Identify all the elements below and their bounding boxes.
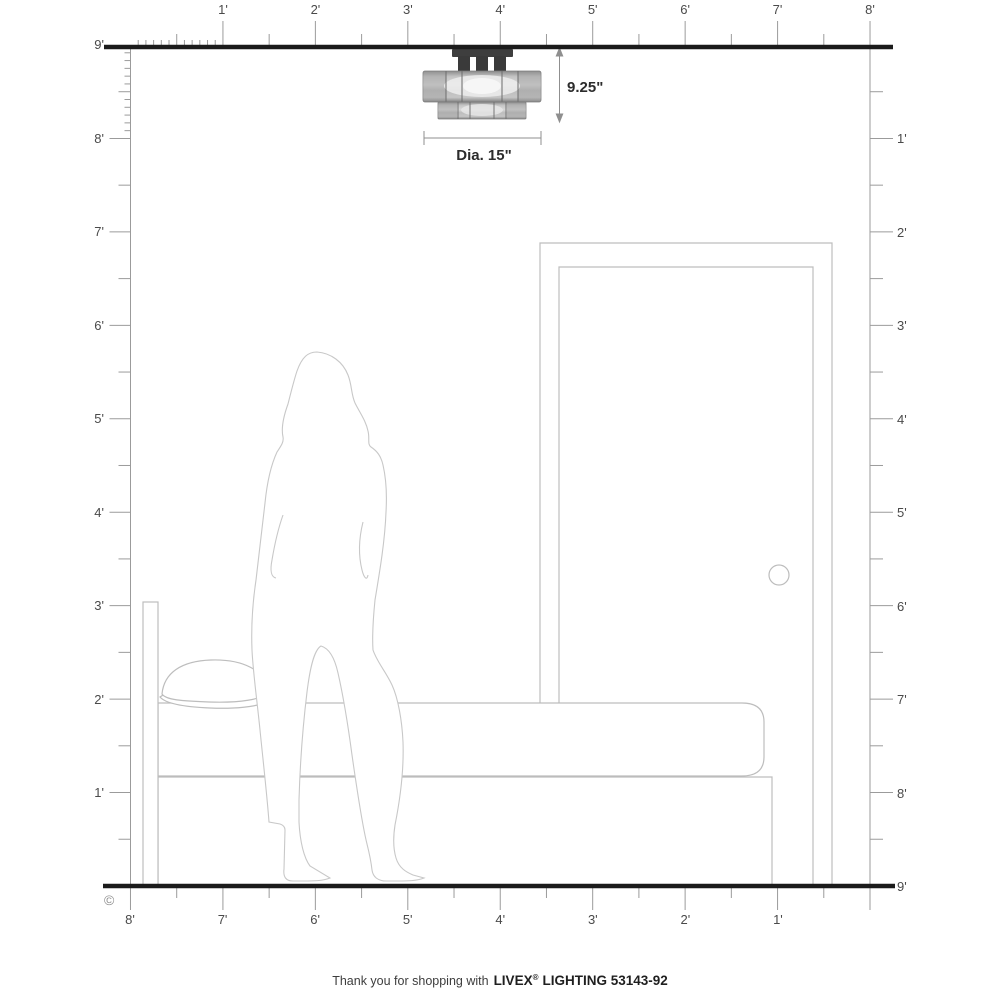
ruler-label: 3' (78, 598, 104, 613)
bed-base (158, 777, 772, 886)
registered-mark: ® (533, 973, 539, 982)
ruler-label: 8' (897, 786, 923, 801)
ruler-label: 1' (78, 785, 104, 800)
product-dimension-diagram: { "title": "Livex Lighting flush mount s… (0, 0, 1000, 1000)
light-stem (476, 56, 488, 72)
light-canopy (452, 49, 513, 57)
ruler-label: 7' (897, 692, 923, 707)
ruler-label: 6' (669, 2, 701, 17)
ruler-label: 3' (897, 318, 923, 333)
ruler-label: 6' (78, 318, 104, 333)
ruler-label: 1' (207, 2, 239, 17)
fixture-diameter-label: Dia. 15" (428, 147, 540, 164)
bed (143, 602, 772, 886)
ruler-label: 2' (669, 912, 701, 927)
flush-mount-light (423, 49, 541, 119)
ruler-label: 5' (577, 2, 609, 17)
light-shade-highlight (463, 78, 501, 94)
ruler-bottom-labels: 8' 7' 6' 5' 4' 3' 2' 1' (114, 912, 794, 927)
ruler-top-labels: 1' 2' 3' 4' 5' 6' 7' 8' (207, 2, 886, 17)
ruler-label: 1' (897, 131, 923, 146)
bed-mattress (158, 703, 764, 776)
ruler-label: 4' (484, 912, 516, 927)
product-number: LIGHTING 53143-92 (542, 973, 667, 988)
ruler-label: 6' (897, 599, 923, 614)
ruler-label: 2' (299, 2, 331, 17)
light-shade-main-shading (424, 72, 446, 101)
ruler-label: 7' (762, 2, 794, 17)
ruler-label: 4' (78, 505, 104, 520)
ruler-label: 9' (897, 879, 923, 894)
copyright-symbol: © (104, 892, 114, 908)
footer-prefix: Thank you for shopping with (332, 974, 488, 988)
ruler-label: 7' (78, 224, 104, 239)
ruler-label: 5' (392, 912, 424, 927)
ruler-label: 4' (897, 412, 923, 427)
light-shade-bottom-shading (507, 103, 525, 118)
door-knob (769, 565, 789, 585)
ruler-left-labels: 9' 8' 7' 6' 5' 4' 3' 2' 1' (78, 37, 104, 800)
ruler-label: 8' (114, 912, 146, 927)
footer-text: Thank you for shopping withLIVEX®LIGHTIN… (0, 973, 1000, 988)
ruler-label: 2' (897, 225, 923, 240)
light-shade-main-shading (518, 72, 540, 101)
brand-name: LIVEX (494, 973, 533, 988)
ruler-right-labels: 1' 2' 3' 4' 5' 6' 7' 8' 9' (897, 131, 923, 894)
ruler-label: 8' (854, 2, 886, 17)
ruler-label: 3' (577, 912, 609, 927)
ruler-label: 5' (78, 411, 104, 426)
ruler-label: 2' (78, 692, 104, 707)
ruler-label: 9' (78, 37, 104, 52)
ruler-label: 1' (762, 912, 794, 927)
light-shade-bottom-highlight (461, 104, 503, 116)
ruler-label: 7' (207, 912, 239, 927)
light-stem (458, 56, 470, 72)
ruler-label: 8' (78, 131, 104, 146)
ruler-label: 4' (484, 2, 516, 17)
ruler-label: 3' (392, 2, 424, 17)
dimension-arrow-down (556, 114, 562, 122)
ruler-label: 5' (897, 505, 923, 520)
bed-headboard (143, 602, 158, 886)
fixture-height-label: 9.25" (567, 79, 603, 96)
light-stem (494, 56, 506, 72)
ruler-label: 6' (299, 912, 331, 927)
light-shade-bottom-shading (439, 103, 457, 118)
